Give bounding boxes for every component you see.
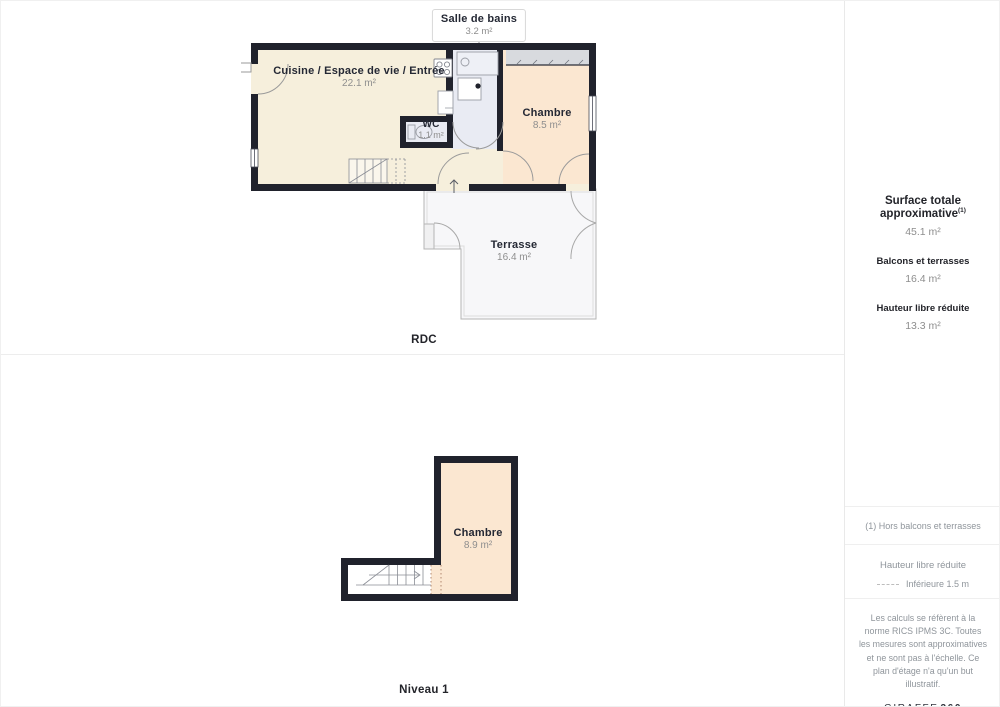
- shower-icon: [457, 52, 498, 75]
- kitchen-counter-icon: [438, 91, 453, 114]
- bathroom-callout-title: Salle de bains: [441, 13, 517, 25]
- floorplan-page: Salle de bains 3.2 m²: [0, 0, 1000, 707]
- niveau1-bedroom-label: Chambre 8.9 m²: [453, 527, 502, 551]
- surface-summary: Surface totale approximative(1) 45.1 m² …: [845, 195, 1000, 332]
- kitchen-label: Cuisine / Espace de vie / Entrée 22.1 m²: [273, 65, 444, 89]
- reduced-height-label: Hauteur libre réduite: [845, 303, 1000, 314]
- legend-item: Inférieure 1.5 m: [906, 579, 969, 589]
- rdc-floor-label: RDC: [411, 334, 437, 346]
- rdc-bedroom-label: Chambre 8.5 m²: [522, 107, 571, 131]
- balconies-label: Balcons et terrasses: [845, 256, 1000, 267]
- footnote-text: (1) Hors balcons et terrasses: [865, 521, 981, 531]
- summary-sidebar: Surface totale approximative(1) 45.1 m² …: [844, 1, 1000, 707]
- surface-total-label: Surface totale approximative(1): [845, 195, 1000, 220]
- footnote-section: (1) Hors balcons et terrasses: [845, 506, 1000, 544]
- balconies-value: 16.4 m²: [845, 273, 1000, 285]
- washbasin-icon: [458, 78, 481, 100]
- floor-divider: [1, 354, 844, 355]
- wc-label: WC 1.1 m²: [418, 119, 444, 140]
- dashed-line-icon: [877, 584, 899, 585]
- legend-row: Inférieure 1.5 m: [845, 579, 1000, 589]
- bathroom-callout: Salle de bains 3.2 m²: [432, 9, 526, 42]
- footnote-ref: (1): [958, 207, 966, 214]
- terrace-wall-stub: [424, 224, 434, 249]
- giraffe360-logo: GIRAFFE360: [858, 703, 988, 707]
- reduced-height-value: 13.3 m²: [845, 320, 1000, 332]
- terrace-label: Terrasse 16.4 m²: [491, 239, 538, 263]
- niveau1-floor-label: Niveau 1: [399, 684, 449, 696]
- plans-area: Salle de bains 3.2 m²: [1, 1, 844, 707]
- surface-total-value: 45.1 m²: [845, 226, 1000, 238]
- disclaimer-section: Les calculs se réfèrent à la norme RICS …: [845, 598, 1000, 707]
- legend-section: Hauteur libre réduite Inférieure 1.5 m: [845, 544, 1000, 598]
- disclaimer-text: Les calculs se réfèrent à la norme RICS …: [858, 612, 988, 691]
- niveau1-stair-floor: [348, 565, 431, 594]
- legend-title: Hauteur libre réduite: [845, 560, 1000, 571]
- bathroom-callout-area: 3.2 m²: [441, 26, 517, 37]
- toilet-dot-icon: [475, 83, 480, 88]
